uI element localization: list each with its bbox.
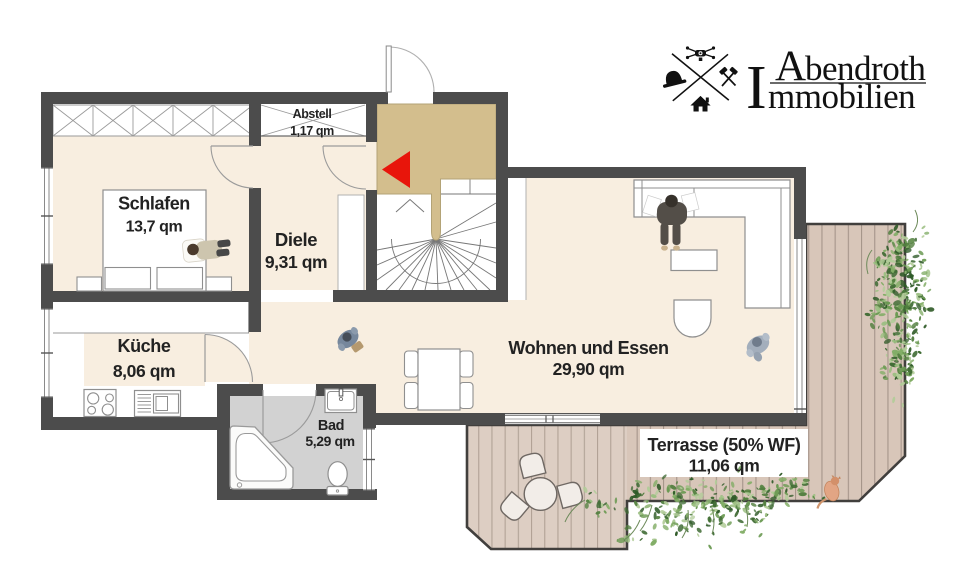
svg-text:Küche: Küche <box>117 336 170 356</box>
svg-text:Bad: Bad <box>318 418 344 434</box>
svg-text:Wohnen und Essen: Wohnen und Essen <box>508 338 668 358</box>
svg-text:11,06 qm: 11,06 qm <box>689 456 760 476</box>
svg-text:13,7 qm: 13,7 qm <box>126 219 183 236</box>
svg-text:1,17 qm: 1,17 qm <box>290 124 334 138</box>
svg-text:Schlafen: Schlafen <box>118 194 190 214</box>
svg-text:9,31 qm: 9,31 qm <box>265 252 327 272</box>
svg-text:Terrasse (50% WF): Terrasse (50% WF) <box>648 435 801 455</box>
svg-text:I: I <box>746 54 767 122</box>
svg-text:5,29 qm: 5,29 qm <box>305 433 354 449</box>
svg-text:29,90 qm: 29,90 qm <box>553 359 625 379</box>
svg-text:8,06 qm: 8,06 qm <box>113 361 175 381</box>
svg-text:Diele: Diele <box>275 229 317 250</box>
svg-text:Abstell: Abstell <box>293 107 332 121</box>
